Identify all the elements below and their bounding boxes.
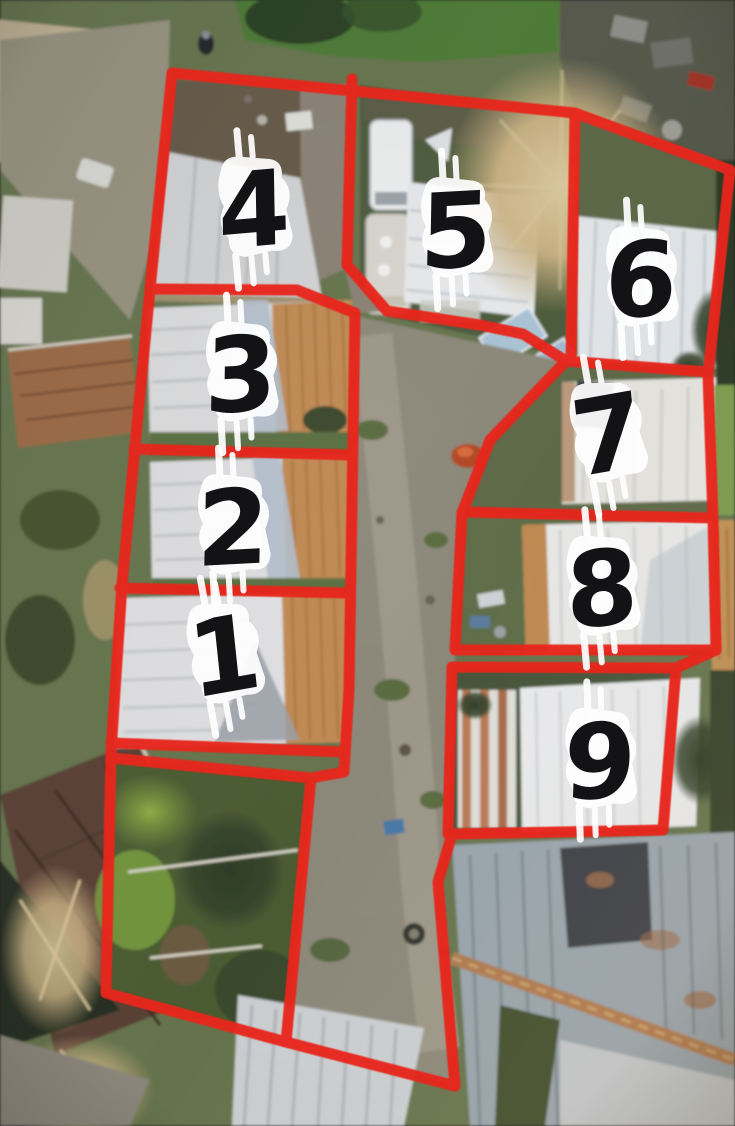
lot-number-label-7: 7: [565, 368, 649, 502]
lot-number-label-5: 5: [419, 168, 493, 294]
lot-number-label-3: 3: [204, 312, 278, 438]
aerial-photo: 1 2 3 4 5 6 7 8: [0, 0, 735, 1126]
lot-number-label-6: 6: [604, 217, 678, 343]
lot-number-badge-9: 9: [557, 677, 644, 844]
lot-number-label-2: 2: [196, 465, 270, 591]
lot-number-label-4: 4: [217, 146, 291, 274]
lot-number-label-8: 8: [565, 525, 639, 653]
lot-number-label-9: 9: [562, 700, 639, 825]
lot-number-label-1: 1: [182, 589, 266, 723]
